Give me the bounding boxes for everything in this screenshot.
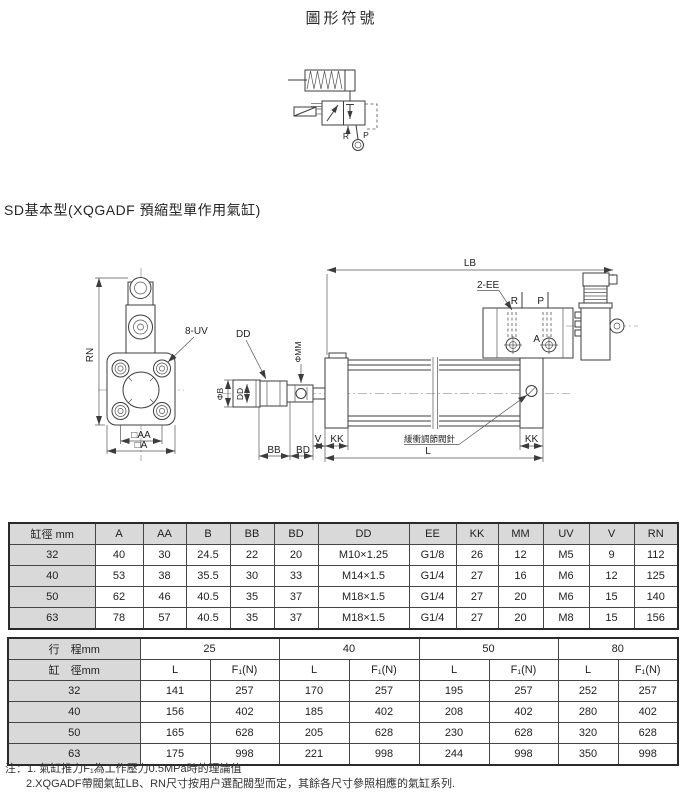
table-cell: 40.5: [186, 608, 230, 630]
table-cell: 63: [9, 608, 95, 630]
table-cell: MM: [498, 523, 543, 545]
table-cell: 40.5: [186, 587, 230, 608]
table-row: 32403024.52220M10×1.25G1/82612M59112: [9, 545, 678, 566]
table-cell: 40: [9, 566, 95, 587]
table-cell: 350: [558, 744, 618, 766]
table-cell: F₁(N): [489, 660, 558, 681]
table-cell: M5: [543, 545, 589, 566]
table-cell: 35: [230, 608, 274, 630]
table-cell: 165: [140, 723, 210, 744]
table-cell: 33: [274, 566, 318, 587]
dim-label-bd: BD: [296, 445, 310, 456]
table-cell: 257: [618, 681, 678, 702]
dim-label-dd-top: DD: [236, 329, 250, 340]
table-cell: 257: [210, 681, 279, 702]
table-cell: 12: [589, 566, 634, 587]
table-cell: G1/4: [409, 566, 456, 587]
table-cell: EE: [409, 523, 456, 545]
dim-label-bb: BB: [267, 445, 281, 456]
table-cell: 15: [589, 608, 634, 630]
footnotes: 注：1. 氣缸推力F₁為工作壓力0.5MPa時的理論值 2.XQGADF帶閥氣缸…: [5, 762, 455, 792]
table-cell: 80: [558, 638, 678, 660]
table-cell: G1/4: [409, 608, 456, 630]
table-cell: 140: [634, 587, 678, 608]
table-cell: 141: [140, 681, 210, 702]
port-a-label: A: [533, 334, 540, 345]
table-cell: 46: [143, 587, 186, 608]
table-cell: 9: [589, 545, 634, 566]
table-cell: M6: [543, 566, 589, 587]
table-cell: 27: [456, 587, 498, 608]
table-cell: 257: [349, 681, 419, 702]
table-cell: M18×1.5: [318, 587, 409, 608]
table-cell: 185: [279, 702, 349, 723]
dim-label-dd-vert: DD: [235, 388, 245, 400]
pneumatic-symbol-diagram: R P: [280, 58, 430, 163]
front-view: RN 8-UV □AA □A: [85, 268, 208, 461]
table-cell: AA: [143, 523, 186, 545]
dimensions-table: 缸徑 mmAAABBBBDDDEEKKMMUVVRN 32403024.5222…: [8, 522, 679, 630]
table-cell: 402: [489, 702, 558, 723]
table-cell: 30: [143, 545, 186, 566]
table-cell: 40: [279, 638, 419, 660]
stroke-thrust-table: 行 程mm25405080缸 徑mmLF₁(N)LF₁(N)LF₁(N)LF₁(…: [7, 637, 679, 766]
table-cell: 125: [634, 566, 678, 587]
table-cell: L: [279, 660, 349, 681]
dim-label-8uv: 8-UV: [185, 326, 208, 337]
table-cell: V: [589, 523, 634, 545]
table-cell: 205: [279, 723, 349, 744]
table-cell: 32: [9, 545, 95, 566]
table-cell: 628: [210, 723, 279, 744]
table-cell: 170: [279, 681, 349, 702]
table-cell: 50: [419, 638, 558, 660]
table-cell: 998: [618, 744, 678, 766]
table-cell: 12: [498, 545, 543, 566]
dim-label-kk-left: KK: [330, 434, 344, 445]
table-cell: 22: [230, 545, 274, 566]
dim-label-phi-b: ΦB: [215, 387, 225, 400]
symbol-port-p-label: P: [363, 130, 369, 140]
table-row: 缸徑 mmAAABBBBDDDEEKKMMUVVRN: [9, 523, 678, 545]
table-cell: 37: [274, 587, 318, 608]
table-cell: BB: [230, 523, 274, 545]
table-cell: 50: [8, 723, 140, 744]
table-cell: RN: [634, 523, 678, 545]
technical-drawing: RN 8-UV □AA □A ΦB DD: [0, 248, 683, 493]
dim-label-kk-right: KK: [525, 434, 539, 445]
footnote-line-1: 注：1. 氣缸推力F₁為工作壓力0.5MPa時的理論值: [5, 762, 455, 777]
table-cell: 20: [498, 608, 543, 630]
table-cell: 35.5: [186, 566, 230, 587]
table-cell: 320: [558, 723, 618, 744]
table-cell: 40: [8, 702, 140, 723]
dim-label-rn: RN: [85, 348, 96, 362]
table-cell: 35: [230, 587, 274, 608]
table-cell: M8: [543, 608, 589, 630]
table-row: 32141257170257195257252257: [8, 681, 678, 702]
table-cell: L: [558, 660, 618, 681]
table-cell: 32: [8, 681, 140, 702]
port-p-label: P: [537, 296, 544, 307]
table-cell: 38: [143, 566, 186, 587]
table-cell: KK: [456, 523, 498, 545]
dim-label-v: V: [315, 434, 322, 445]
table-row: 63785740.53537M18×1.5G1/42720M815156: [9, 608, 678, 630]
table-cell: 16: [498, 566, 543, 587]
dim-label-2ee: 2-EE: [477, 280, 500, 291]
table-row: 行 程mm25405080: [8, 638, 678, 660]
table-cell: 402: [618, 702, 678, 723]
dim-label-lb: LB: [464, 258, 477, 269]
table-cell: 208: [419, 702, 489, 723]
dim-label-a-square: □A: [135, 440, 148, 451]
port-r-label: R: [511, 296, 518, 307]
table-cell: 112: [634, 545, 678, 566]
table-cell: M10×1.25: [318, 545, 409, 566]
table-cell: 25: [140, 638, 279, 660]
table-cell: 缸 徑mm: [8, 660, 140, 681]
table-cell: 20: [274, 545, 318, 566]
table-cell: 628: [618, 723, 678, 744]
table-cell: 30: [230, 566, 274, 587]
table-cell: 195: [419, 681, 489, 702]
table-row: 40156402185402208402280402: [8, 702, 678, 723]
table-cell: 62: [95, 587, 143, 608]
table-cell: L: [140, 660, 210, 681]
table-cell: M6: [543, 587, 589, 608]
table-cell: 230: [419, 723, 489, 744]
table-cell: G1/4: [409, 587, 456, 608]
dim-label-phi-mm: ΦMM: [293, 342, 303, 363]
section-heading: SD基本型(XQGADF 預縮型單作用氣缸): [4, 200, 261, 220]
table-cell: 252: [558, 681, 618, 702]
table-cell: 26: [456, 545, 498, 566]
table-cell: 40: [95, 545, 143, 566]
table-cell: 15: [589, 587, 634, 608]
table-cell: F₁(N): [618, 660, 678, 681]
table-cell: 257: [489, 681, 558, 702]
table-row: 50165628205628230628320628: [8, 723, 678, 744]
table-cell: 402: [349, 702, 419, 723]
valve-assembly: R P 2-EE A: [477, 273, 638, 360]
symbol-port-r-label: R: [343, 131, 349, 141]
table-cell: A: [95, 523, 143, 545]
table-cell: UV: [543, 523, 589, 545]
table-cell: 27: [456, 608, 498, 630]
table-cell: 行 程mm: [8, 638, 140, 660]
dim-label-l: L: [425, 446, 431, 457]
footnote-line-2: 2.XQGADF帶閥氣缸LB、RN尺寸按用户選配閥型而定，其餘各尺寸參照相應的氣…: [26, 777, 455, 792]
table-cell: 50: [9, 587, 95, 608]
table-cell: 156: [634, 608, 678, 630]
cushion-needle-label: 緩衝調節閥針: [404, 434, 456, 444]
table-cell: F₁(N): [349, 660, 419, 681]
page-title: 圖形符號: [0, 7, 683, 28]
table-cell: 628: [489, 723, 558, 744]
valve-symbol: R P: [294, 101, 377, 151]
table-row: 缸 徑mmLF₁(N)LF₁(N)LF₁(N)LF₁(N): [8, 660, 678, 681]
table-cell: 402: [210, 702, 279, 723]
table-cell: G1/8: [409, 545, 456, 566]
table-cell: BD: [274, 523, 318, 545]
table-cell: 57: [143, 608, 186, 630]
table-cell: B: [186, 523, 230, 545]
table-cell: 78: [95, 608, 143, 630]
table-cell: 280: [558, 702, 618, 723]
table-cell: 缸徑 mm: [9, 523, 95, 545]
table-cell: 27: [456, 566, 498, 587]
table-cell: 37: [274, 608, 318, 630]
table-cell: 20: [498, 587, 543, 608]
table-cell: F₁(N): [210, 660, 279, 681]
table-row: 50624640.53537M18×1.5G1/42720M615140: [9, 587, 678, 608]
cylinder-spring-symbol: [288, 70, 355, 101]
table-row: 40533835.53033M14×1.5G1/42716M612125: [9, 566, 678, 587]
table-cell: 24.5: [186, 545, 230, 566]
table-cell: 628: [349, 723, 419, 744]
table-cell: DD: [318, 523, 409, 545]
table-cell: 53: [95, 566, 143, 587]
table-cell: 998: [489, 744, 558, 766]
table-cell: M14×1.5: [318, 566, 409, 587]
table-cell: M18×1.5: [318, 608, 409, 630]
table-cell: 156: [140, 702, 210, 723]
table-cell: L: [419, 660, 489, 681]
